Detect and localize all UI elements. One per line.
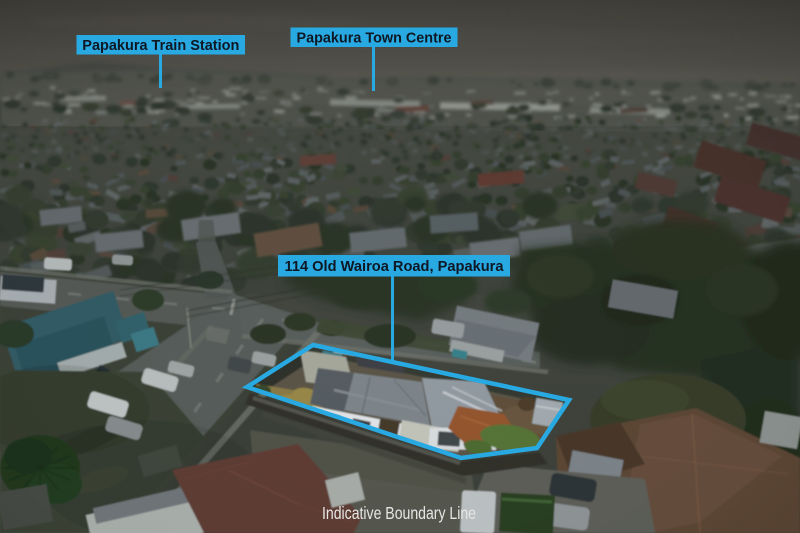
svg-text:Indicative Boundary Line: Indicative Boundary Line bbox=[322, 503, 476, 523]
svg-text:Papakura Town Centre: Papakura Town Centre bbox=[297, 30, 452, 47]
svg-text:114 Old Wairoa Road, Papakura: 114 Old Wairoa Road, Papakura bbox=[285, 258, 505, 275]
svg-text:Papakura Train Station: Papakura Train Station bbox=[82, 37, 239, 54]
